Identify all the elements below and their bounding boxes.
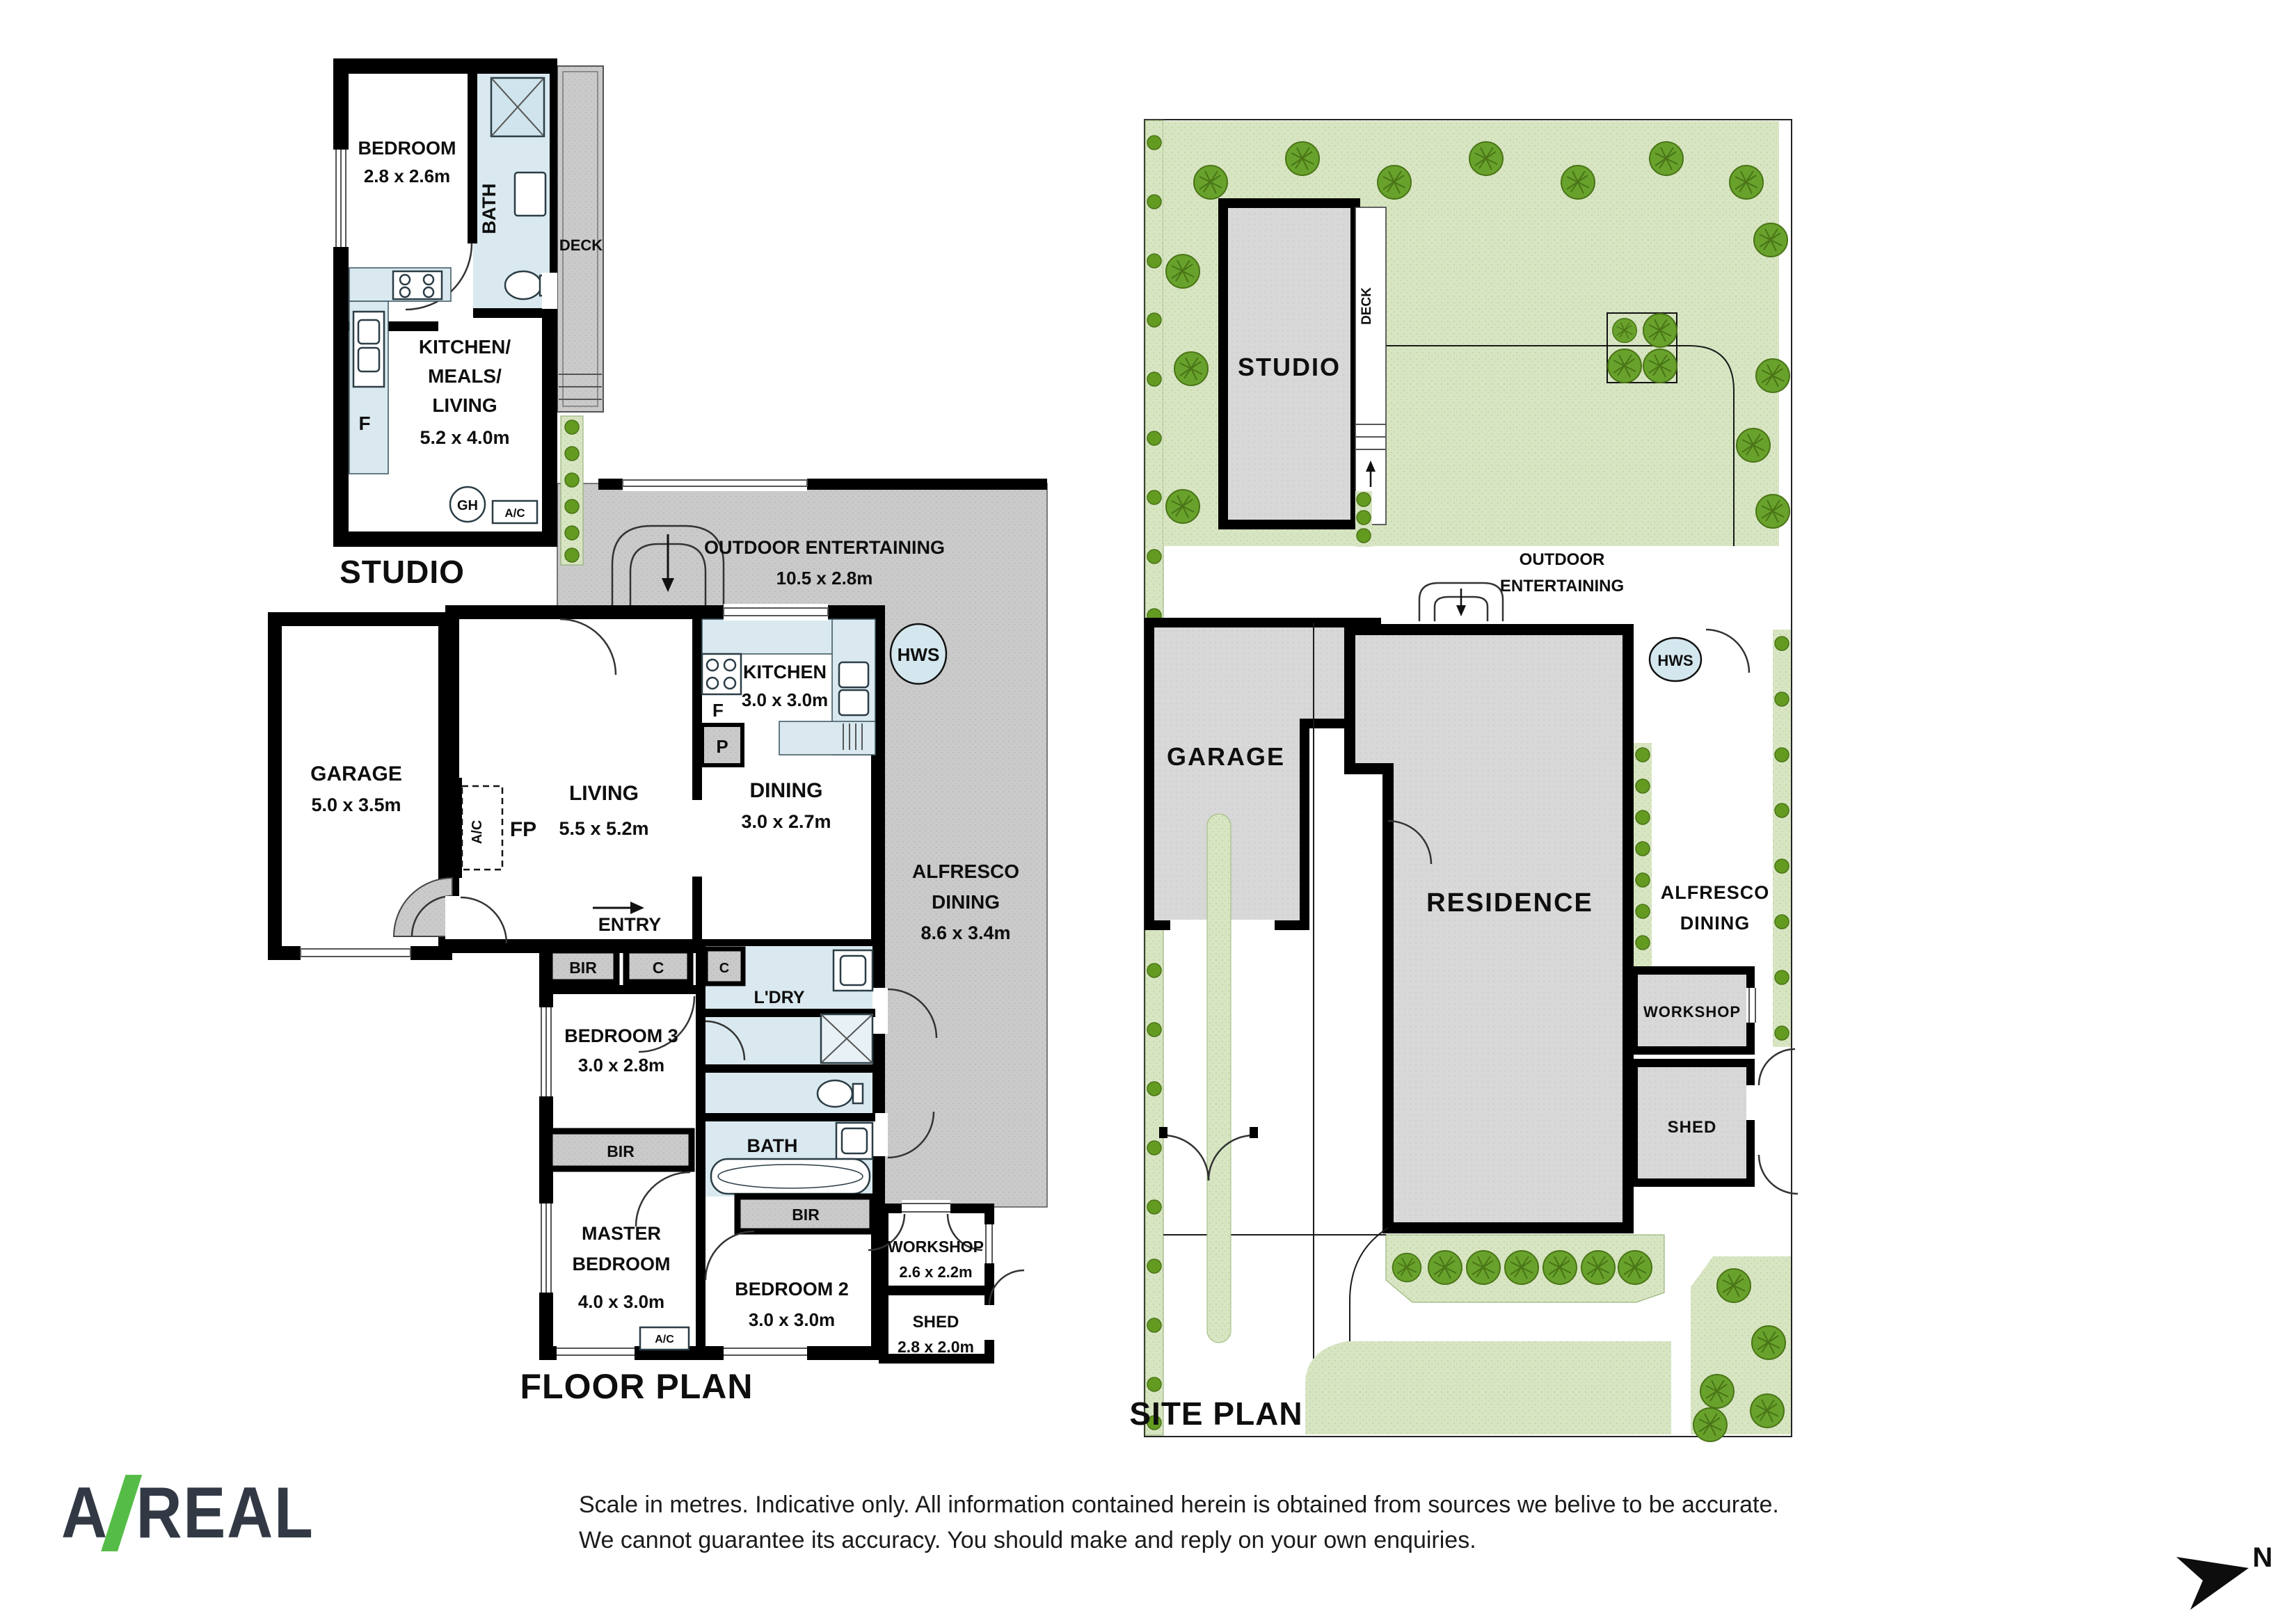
- north-label: N: [2253, 1542, 2273, 1573]
- studio-deck: DECK: [557, 66, 603, 412]
- hall-bir-label: BIR: [569, 959, 597, 977]
- bedroom2-dims: 3.0 x 3.0m: [749, 1309, 835, 1330]
- studio-kml-label-1: KITCHEN/: [419, 336, 511, 358]
- site-deck-hedge: [1355, 491, 1372, 547]
- studio-bath-label: BATH: [479, 184, 500, 234]
- disclaimer-text: Scale in metres. Indicative only. All in…: [579, 1487, 2075, 1558]
- north-arrow: N: [2176, 1542, 2272, 1610]
- studio-bedroom-dims: 2.8 x 2.6m: [364, 166, 450, 186]
- kitchen-dims: 3.0 x 3.0m: [742, 689, 828, 710]
- site-shed-label: SHED: [1668, 1118, 1717, 1137]
- master-label-2: BEDROOM: [573, 1254, 671, 1274]
- site-bottom-right-garden: [1691, 1256, 1791, 1441]
- bedroom2-bir-label: BIR: [792, 1206, 820, 1224]
- laundry-closet-label: C: [719, 961, 729, 976]
- laundry-room: C L'DRY: [699, 946, 875, 1017]
- pantry-label: P: [716, 736, 728, 757]
- studio-kml-label-3: LIVING: [432, 394, 497, 416]
- site-deck-label: DECK: [1360, 287, 1374, 325]
- kitchen-label: KITCHEN: [743, 662, 827, 682]
- outdoor-entertaining-dims: 10.5 x 2.8m: [776, 568, 873, 589]
- site-outdoor-label-1: OUTDOOR: [1520, 550, 1605, 569]
- garage-label: GARAGE: [310, 762, 402, 785]
- studio-bedroom-label: BEDROOM: [358, 138, 456, 159]
- studio-unit: GH A/C BEDROOM 2.8 x 2.6m BATH KITCHEN/ …: [332, 66, 557, 539]
- dining-label: DINING: [750, 779, 823, 802]
- hws-label: HWS: [898, 644, 940, 665]
- living-dims: 5.5 x 5.2m: [559, 818, 648, 839]
- workshop-dims: 2.6 x 2.2m: [899, 1263, 972, 1281]
- deck-hedge: [561, 416, 583, 565]
- site-garage-label: GARAGE: [1167, 742, 1285, 771]
- site-right-hedge: [1773, 630, 1791, 1047]
- entry-label: ENTRY: [598, 914, 662, 935]
- bedroom3-bir-label: BIR: [607, 1142, 635, 1160]
- disclaimer-line-1: Scale in metres. Indicative only. All in…: [579, 1487, 2075, 1523]
- site-deck: DECK: [1355, 207, 1386, 525]
- logo-letter-a: A: [61, 1477, 109, 1549]
- studio-fridge-label: F: [358, 413, 370, 434]
- site-workshop-label: WORKSHOP: [1643, 1003, 1741, 1021]
- floor-plan-title: FLOOR PLAN: [520, 1367, 754, 1406]
- site-bottom-hedge: [1386, 1235, 1664, 1302]
- wc-room: [699, 1073, 875, 1121]
- shower-room: [699, 1014, 875, 1073]
- site-hws-label: HWS: [1657, 652, 1693, 669]
- bath-label: BATH: [747, 1135, 798, 1156]
- gh-label: GH: [457, 498, 478, 513]
- alfresco-dims: 8.6 x 3.4m: [920, 922, 1010, 943]
- laundry-label: L'DRY: [754, 988, 804, 1007]
- site-outdoor-label-2: ENTERTAINING: [1500, 577, 1624, 595]
- site-residence-label: RESIDENCE: [1426, 888, 1593, 918]
- kitchen-fridge-label: F: [712, 700, 724, 721]
- shed-dims: 2.8 x 2.0m: [898, 1338, 974, 1356]
- bath-room: BATH: [705, 1121, 872, 1197]
- floorplan-page: { "floor_plan": { "title": "FLOOR PLAN",…: [0, 0, 2296, 1623]
- living-label: LIVING: [569, 782, 639, 805]
- outdoor-entertaining-label: OUTDOOR ENTERTAINING: [704, 537, 945, 558]
- bedroom3-label: BEDROOM 3: [564, 1025, 678, 1046]
- master-label-1: MASTER: [582, 1223, 661, 1244]
- workshop-room: WORKSHOP 2.6 x 2.2m: [868, 1200, 996, 1290]
- studio-ac-label: A/C: [504, 506, 525, 520]
- studio-kml-label-2: MEALS/: [428, 365, 502, 387]
- bedroom3-dims: 3.0 x 2.8m: [578, 1055, 664, 1076]
- plans-canvas: DECK GH A/C: [0, 0, 2296, 1623]
- living-ac-label: A/C: [470, 820, 485, 844]
- hall-closet-label: C: [653, 959, 664, 977]
- dining-dims: 3.0 x 2.7m: [741, 811, 831, 832]
- fireplace-label: FP: [510, 818, 536, 841]
- master-ac-label: A/C: [655, 1334, 674, 1345]
- site-studio-label: STUDIO: [1238, 353, 1341, 381]
- master-dims: 4.0 x 3.0m: [578, 1291, 664, 1312]
- alfresco-label-2: DINING: [932, 891, 1000, 913]
- garage-dims: 5.0 x 3.5m: [311, 794, 401, 815]
- studio-title: STUDIO: [340, 554, 465, 590]
- shed-label: SHED: [913, 1313, 959, 1332]
- logo-word-real: REAL: [136, 1477, 314, 1549]
- bedroom2-label: BEDROOM 2: [735, 1279, 849, 1300]
- site-residence-building: [1350, 630, 1628, 1228]
- disclaimer-line-2: We cannot guarantee its accuracy. You sh…: [579, 1523, 2075, 1558]
- kitchen-room: F KITCHEN 3.0 x 3.0m P: [702, 619, 875, 765]
- studio-kml-dims: 5.2 x 4.0m: [420, 427, 509, 448]
- site-alfresco-label-2: DINING: [1680, 913, 1751, 934]
- site-alfresco-hedge: [1634, 743, 1652, 988]
- alfresco-label-1: ALFRESCO: [912, 861, 1019, 882]
- workshop-label: WORKSHOP: [888, 1238, 984, 1256]
- deck-label: DECK: [559, 237, 603, 254]
- site-bottom-lawn: [1305, 1341, 1671, 1434]
- agency-logo: A REAL: [61, 1475, 314, 1551]
- site-alfresco-label-1: ALFRESCO: [1661, 882, 1770, 903]
- site-plan-title: SITE PLAN: [1129, 1396, 1302, 1432]
- north-arrow-icon: [2176, 1557, 2249, 1610]
- floor-plan: DECK GH A/C: [275, 66, 1047, 1406]
- site-plan: STUDIO DECK OUTDOOR ENTERTAINING GARAGE …: [1129, 120, 1798, 1441]
